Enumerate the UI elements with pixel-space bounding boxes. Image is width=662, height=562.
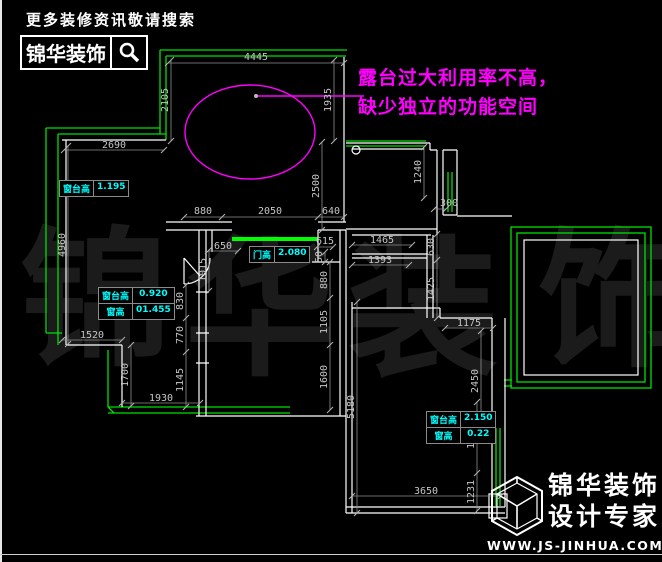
dimension-label: 1175 (457, 318, 481, 329)
column-symbol (352, 146, 360, 154)
footer-url: WWW.JS-JINHUA.COM (487, 538, 662, 553)
dimension-label: 1520 (80, 330, 104, 341)
dimension-label: 2450 (470, 369, 481, 393)
terrace-ellipse (185, 85, 315, 179)
label-value: 1.195 (93, 181, 128, 196)
sill-height-label-br: 窗台高 2.150 窗高 0.22 (426, 411, 496, 444)
annotation-line-2: 缺少独立的功能空间 (358, 93, 558, 122)
label-key: 窗台高 (427, 412, 460, 427)
dimension-label: 880 (319, 271, 330, 289)
dimension-label: 1425 (426, 277, 437, 301)
cube-logo-icon (490, 476, 544, 540)
terrace-annotation-graphics (185, 85, 364, 179)
dimension-label: 770 (175, 326, 186, 344)
door-height-label: 门高 2.080 (249, 246, 310, 263)
label-key: 窗台高 (99, 288, 132, 303)
magnifier-icon (112, 41, 146, 65)
label-value: 01.455 (132, 303, 174, 319)
label-value: 2.150 (460, 412, 495, 427)
dimension-label: 880 (194, 206, 212, 217)
label-key: 窗高 (427, 427, 460, 443)
label-key: 窗台高 (60, 181, 93, 196)
leader-anchor-dot (254, 94, 258, 98)
label-value: 0.22 (460, 427, 495, 443)
terrace-annotation: 露台过大利用率不高， 缺少独立的功能空间 (358, 64, 558, 122)
sill-height-label-mid: 窗台高 0.920 窗高 01.455 (98, 287, 175, 320)
dimension-label: 2500 (311, 174, 322, 198)
dimension-label: 1700 (120, 363, 131, 387)
dimension-label: 1231 (466, 480, 477, 504)
dimension-label: 1393 (368, 255, 392, 266)
label-value: 2.080 (274, 247, 309, 262)
dimension-label: 1145 (175, 368, 186, 392)
dimension-label: 1930 (149, 393, 173, 404)
dimension-label: 615 (316, 236, 334, 247)
dimension-label: 4960 (57, 233, 68, 257)
label-value: 0.920 (132, 288, 174, 303)
dimension-label: 50 (314, 251, 325, 263)
label-key: 门高 (250, 247, 274, 262)
screenshot-left-edge (0, 0, 2, 562)
dimension-label: 1015 (198, 258, 209, 282)
floorplan-screenshot: 锦 华 装 饰 (0, 0, 662, 562)
search-tagline: 更多装修资讯敬请搜索 (26, 9, 196, 30)
dimension-label: 1465 (370, 235, 394, 246)
dimension-label: 640 (322, 206, 340, 217)
screenshot-bottom-edge (0, 554, 662, 555)
dimension-label: 1105 (319, 310, 330, 334)
footer-brand-line2: 设计专家 (548, 497, 660, 533)
annotation-line-1: 露台过大利用率不高， (358, 64, 558, 93)
brand-name: 锦华装饰 (22, 38, 110, 67)
dimension-label: 1600 (319, 365, 330, 389)
dimension-label: 5180 (346, 395, 357, 419)
dimension-label: 2105 (160, 88, 171, 112)
dimension-label: 4445 (244, 52, 268, 63)
sill-height-label-left: 窗台高 1.195 (59, 180, 129, 197)
dimension-label: 830 (175, 292, 186, 310)
dimension-label: 2690 (102, 140, 126, 151)
dimension-label: 650 (214, 241, 232, 252)
dimension-label: 2050 (258, 206, 282, 217)
brand-search-logo: 锦华装饰 (20, 35, 148, 70)
dimension-label: 3650 (414, 486, 438, 497)
window-lines (46, 50, 651, 506)
dimension-label: 300 (440, 198, 458, 209)
dimension-label: 1935 (323, 88, 334, 112)
label-key: 窗高 (99, 303, 132, 319)
dimension-label: 630 (426, 238, 437, 256)
dimension-label: 1240 (413, 160, 424, 184)
